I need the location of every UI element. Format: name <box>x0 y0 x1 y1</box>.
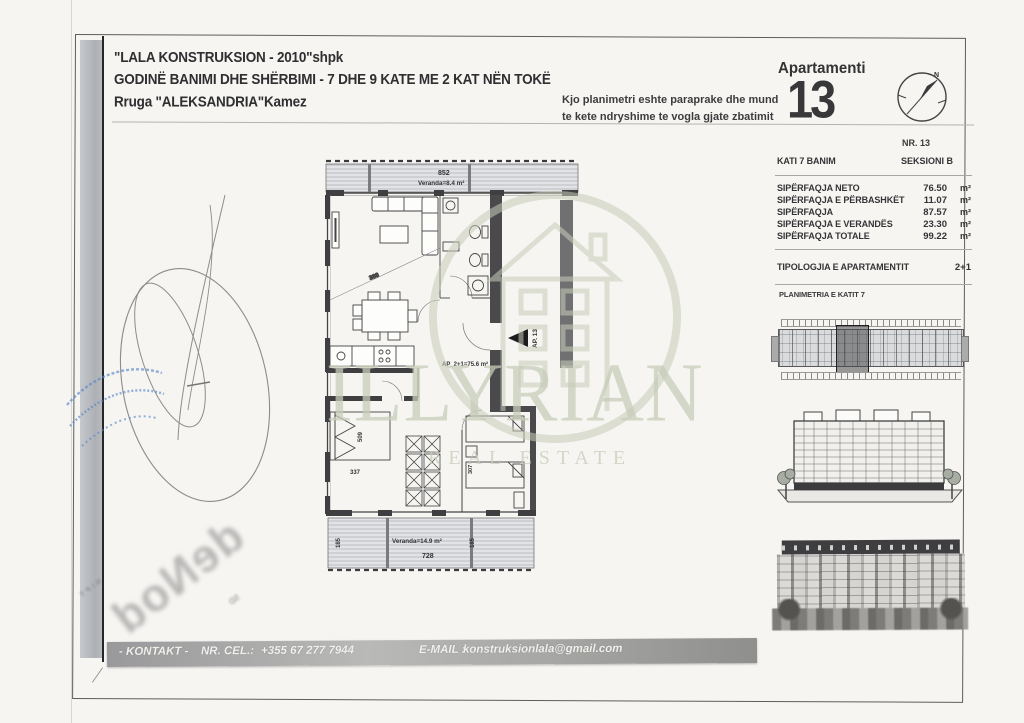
floor-strip <box>778 329 964 367</box>
row-unit: m² <box>947 207 971 218</box>
floor-section-row: KATI 7 BANIM SEKSIONI B <box>777 156 971 166</box>
row-unit: m² <box>947 195 971 206</box>
table-row: SIPËRFAQJA NETO 76.50 m² <box>777 183 971 194</box>
dim-728: 728 <box>422 553 434 560</box>
row-unit: m² <box>947 219 971 230</box>
nr-label: NR. 13 <box>886 138 946 148</box>
typology-label: TIPOLOGJIA E APARTAMENTIT <box>777 262 915 274</box>
row-value: 87.57 <box>909 207 947 218</box>
phone-number: +355 67 277 7944 <box>261 644 354 657</box>
photo-roof <box>782 540 960 555</box>
desk <box>514 492 524 508</box>
building-elevation-drawing <box>770 402 970 520</box>
row-label: SIPËRFAQJA TOTALE <box>777 231 909 243</box>
dimension-band <box>781 372 961 380</box>
handwritten-signature <box>60 180 320 510</box>
email-address: konstruksionlala@gmail.com <box>463 643 623 656</box>
side-block <box>771 336 779 362</box>
building-description: GODINË BANIMI DHE SHËRBIMI - 7 DHE 9 KAT… <box>114 68 551 90</box>
watermark-subtitle: REAL ESTATE <box>428 447 632 470</box>
typology-row: TIPOLOGJIA E APARTAMENTIT 2+1 <box>777 262 971 273</box>
stamp-fragment: NIPT <box>77 578 103 601</box>
document-header: "LALA KONSTRUKSION - 2010"shpk GODINË BA… <box>114 46 551 113</box>
row-unit: m² <box>947 183 971 194</box>
table-row: SIPËRFAQJA 87.57 m² <box>777 207 971 218</box>
dim-185: 185 <box>336 537 342 548</box>
notice-line-2: te kete ndryshime te vogla gjate zbatimi… <box>562 109 778 126</box>
table-row: SIPËRFAQJA TOTALE 99.22 m² <box>777 231 971 242</box>
address: Rruga "ALEKSANDRIA"Kamez <box>114 91 551 113</box>
key-plan-title: PLANIMETRIA E KATIT 7 <box>779 290 865 299</box>
table-row: SIPËRFAQJA E PËRBASHKËT 11.07 m² <box>777 195 971 206</box>
veranda-bottom-label: Veranda=14.9 m² <box>392 538 442 545</box>
table-rule <box>775 175 972 176</box>
compass-icon: N <box>893 68 951 126</box>
apartment-number: 13 <box>787 68 833 130</box>
preliminary-notice: Kjo planimetri eshte paraprake dhe mund … <box>562 92 778 126</box>
photo-tree <box>774 598 804 622</box>
tv-unit <box>332 212 339 248</box>
key-plan-strip <box>776 314 966 386</box>
section-label: SEKSIONI B <box>901 156 971 167</box>
row-label: SIPËRFAQJA NETO <box>777 183 909 195</box>
veranda-bottom: Veranda=14.9 m² 728 185 185 <box>328 518 534 570</box>
coffee-table <box>380 226 408 243</box>
watermark-name: ILLYRIAN <box>326 346 704 442</box>
dim-388: 388 <box>369 272 381 282</box>
dim-852: 852 <box>438 170 450 177</box>
scanned-floorplan-page: "LALA KONSTRUKSION - 2010"shpk GODINË BA… <box>0 0 1024 723</box>
row-label: SIPËRFAQJA <box>777 207 909 219</box>
notice-line-1: Kjo planimetri eshte paraprake dhe mund <box>562 92 778 109</box>
floor-label: KATI 7 BANIM <box>777 156 901 167</box>
contact-bar: - KONTAKT - NR. CEL.: +355 67 277 7944 E… <box>107 638 757 667</box>
cel-label: NR. CEL.: <box>201 645 254 657</box>
row-label: SIPËRFAQJA E PËRBASHKËT <box>777 195 909 207</box>
table-row: SIPËRFAQJA E VERANDËS 23.30 m² <box>777 219 971 230</box>
dimension-band <box>781 319 961 327</box>
email-label: E-MAIL : <box>419 644 465 656</box>
row-value: 11.07 <box>909 195 947 206</box>
kontakt-label: - KONTAKT - <box>119 645 188 657</box>
dim-185: 185 <box>470 537 476 548</box>
table-rule <box>775 249 972 250</box>
dim-337: 337 <box>350 470 361 476</box>
company-name: "LALA KONSTRUKSION - 2010"shpk <box>114 46 551 68</box>
row-label: SIPËRFAQJA E VERANDËS <box>777 219 909 231</box>
typology-value: 2+1 <box>915 262 971 273</box>
side-block <box>961 336 969 362</box>
compass-north-label: N <box>934 72 939 79</box>
row-value: 23.30 <box>909 219 947 230</box>
building-photo <box>772 533 969 636</box>
highlighted-unit <box>836 325 869 373</box>
stamp-fragment: SD <box>227 593 241 607</box>
row-value: 76.50 <box>909 183 947 194</box>
row-unit: m² <box>947 231 971 242</box>
table-rule <box>775 284 972 285</box>
row-value: 99.22 <box>909 231 947 242</box>
photo-tree <box>936 597 966 621</box>
